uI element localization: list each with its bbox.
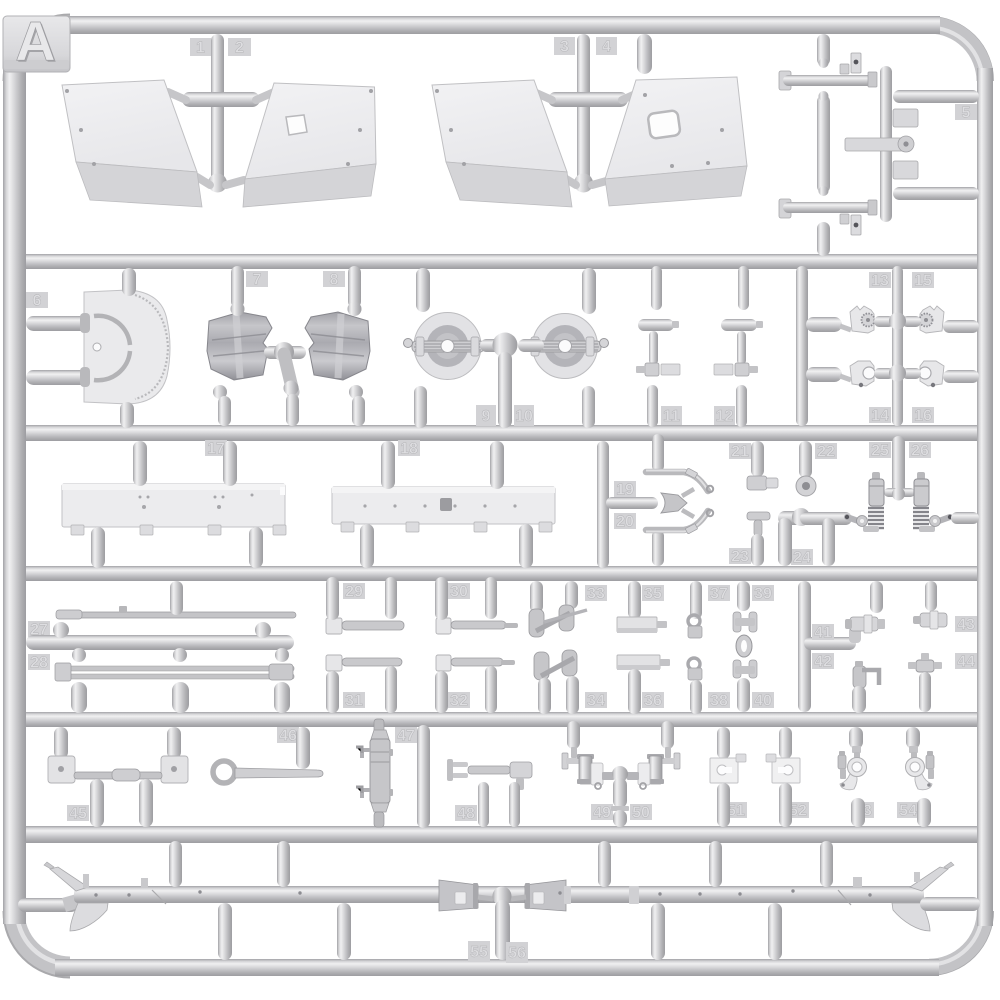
svg-text:32: 32 [450,693,468,710]
svg-text:7: 7 [253,272,262,289]
svg-text:12: 12 [716,408,734,425]
svg-text:55: 55 [470,944,488,961]
svg-text:10: 10 [515,408,533,425]
svg-text:15: 15 [914,273,932,290]
svg-text:11: 11 [663,408,680,425]
svg-text:4: 4 [602,39,611,56]
svg-text:9: 9 [482,408,491,425]
svg-text:35: 35 [644,586,662,603]
svg-text:37: 37 [710,586,728,603]
svg-text:A: A [15,10,55,73]
svg-text:49: 49 [593,805,611,822]
svg-text:25: 25 [871,443,889,460]
svg-text:14: 14 [871,408,889,425]
svg-text:1: 1 [196,40,205,57]
svg-text:45: 45 [69,806,87,823]
svg-text:40: 40 [754,693,772,710]
svg-text:56: 56 [508,945,526,962]
svg-text:6: 6 [33,293,42,310]
svg-text:19: 19 [616,482,634,499]
svg-text:2: 2 [235,40,244,57]
svg-text:34: 34 [587,693,605,710]
svg-text:28: 28 [30,655,48,672]
svg-text:30: 30 [450,584,468,601]
svg-text:23: 23 [731,549,749,566]
svg-text:18: 18 [400,441,418,458]
svg-text:5: 5 [962,105,971,122]
svg-text:44: 44 [957,654,975,671]
svg-text:29: 29 [345,584,363,601]
svg-text:50: 50 [632,805,650,822]
svg-text:38: 38 [710,693,728,710]
svg-text:54: 54 [899,803,917,820]
svg-text:20: 20 [616,514,634,531]
svg-text:46: 46 [279,728,297,745]
svg-text:31: 31 [345,693,363,710]
svg-text:42: 42 [814,654,832,671]
svg-text:33: 33 [587,586,605,603]
svg-text:16: 16 [914,408,932,425]
svg-text:43: 43 [957,617,975,634]
svg-text:39: 39 [754,586,772,603]
svg-text:36: 36 [644,693,662,710]
svg-text:13: 13 [871,273,889,290]
svg-text:21: 21 [731,444,749,461]
svg-text:8: 8 [330,272,339,289]
svg-text:17: 17 [207,441,225,458]
svg-text:48: 48 [457,806,475,823]
svg-text:26: 26 [911,443,929,460]
svg-text:24: 24 [793,550,811,567]
svg-text:41: 41 [814,625,832,642]
svg-text:3: 3 [560,39,569,56]
svg-text:22: 22 [817,444,835,461]
svg-text:47: 47 [397,728,415,745]
